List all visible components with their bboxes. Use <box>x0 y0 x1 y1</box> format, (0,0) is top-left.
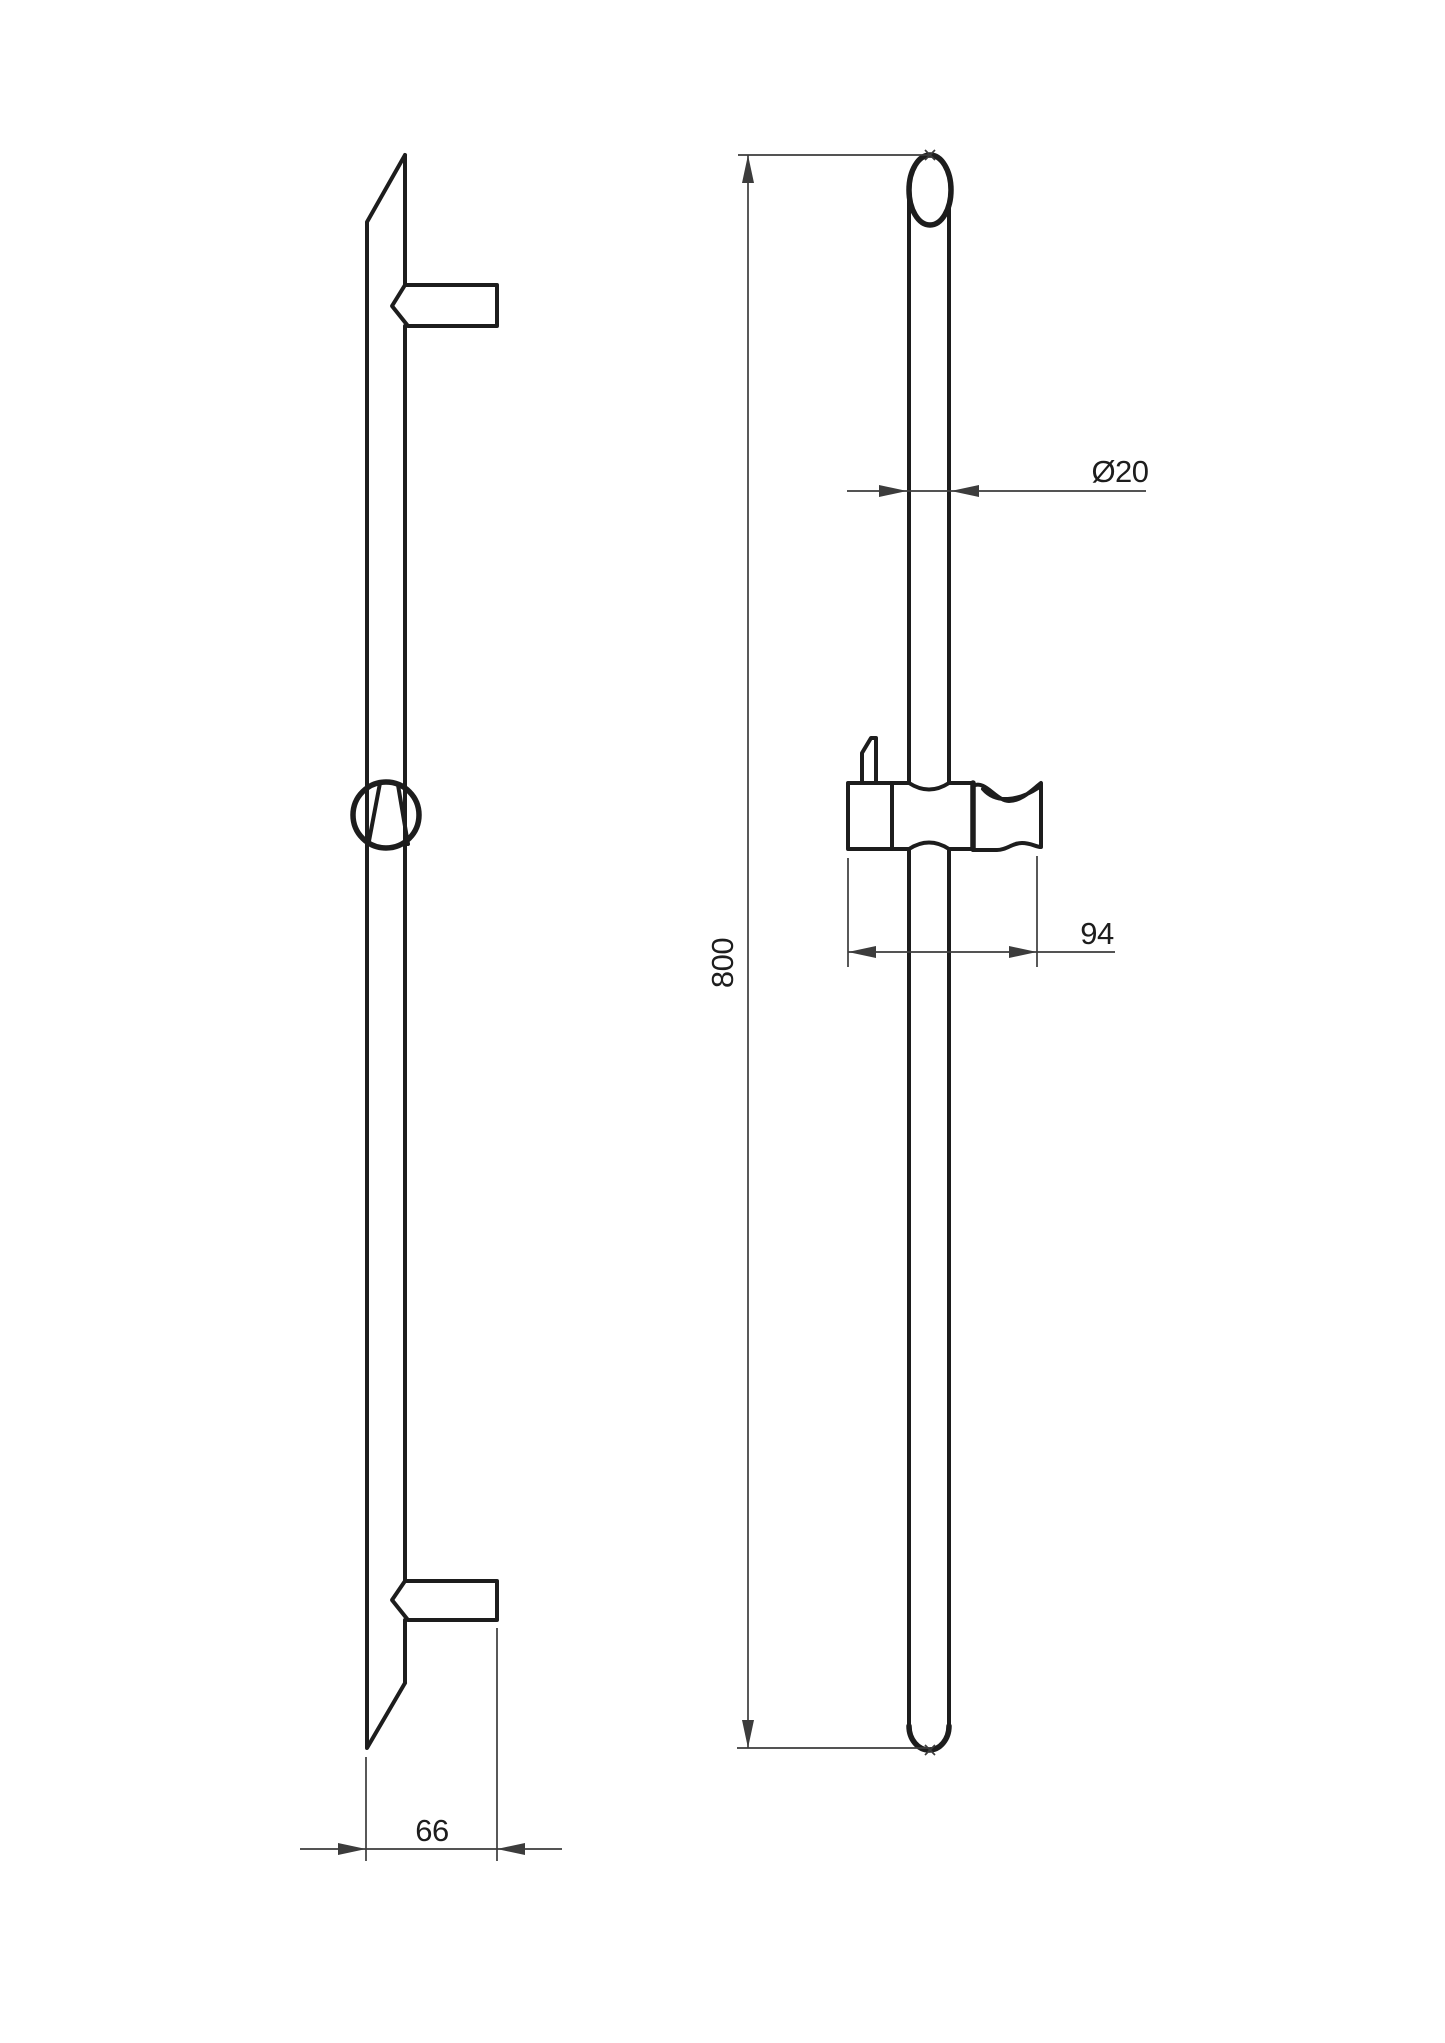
dimension-bracket-depth: 66 <box>300 1628 562 1861</box>
dimension-label-94: 94 <box>1080 916 1114 951</box>
dimension-label-800: 800 <box>705 938 740 988</box>
dimension-holder-width: 94 <box>848 856 1115 967</box>
front-view-holder-middle-section <box>892 783 973 849</box>
front-view-holder-lever <box>862 738 876 783</box>
front-view-tube-sides <box>909 196 949 1726</box>
technical-drawing: 66 800 Ø20 94 <box>0 0 1445 2043</box>
dimension-label-66: 66 <box>415 1813 448 1848</box>
arrowhead-66-right <box>497 1843 525 1855</box>
front-view-holder-left-section <box>848 783 892 849</box>
dimension-label-d20: Ø20 <box>1091 454 1148 489</box>
side-view-top-bracket <box>392 285 497 326</box>
side-view-bottom-bracket <box>392 1581 497 1620</box>
arrowhead-d20-right <box>951 485 979 497</box>
dimension-tube-diameter: Ø20 <box>847 454 1149 497</box>
side-view <box>353 155 497 1748</box>
side-view-rail-profile <box>367 155 405 1748</box>
extension-lines-94 <box>848 856 1037 967</box>
front-view-holder-cradle <box>973 783 1041 850</box>
drawing-sheet: 66 800 Ø20 94 <box>0 0 1445 2043</box>
arrowhead-800-top <box>742 155 754 183</box>
arrowhead-94-left <box>848 946 876 958</box>
side-view-knob-grip-lines <box>369 783 408 844</box>
arrowhead-d20-left <box>879 485 907 497</box>
side-view-knob <box>353 782 419 848</box>
front-view-tube-bottom-cap <box>909 1726 949 1750</box>
arrowhead-66-left <box>338 1843 366 1855</box>
front-view-tube-top-cap <box>909 155 951 225</box>
arrowhead-94-right <box>1009 946 1037 958</box>
arrowhead-800-bottom <box>742 1720 754 1748</box>
